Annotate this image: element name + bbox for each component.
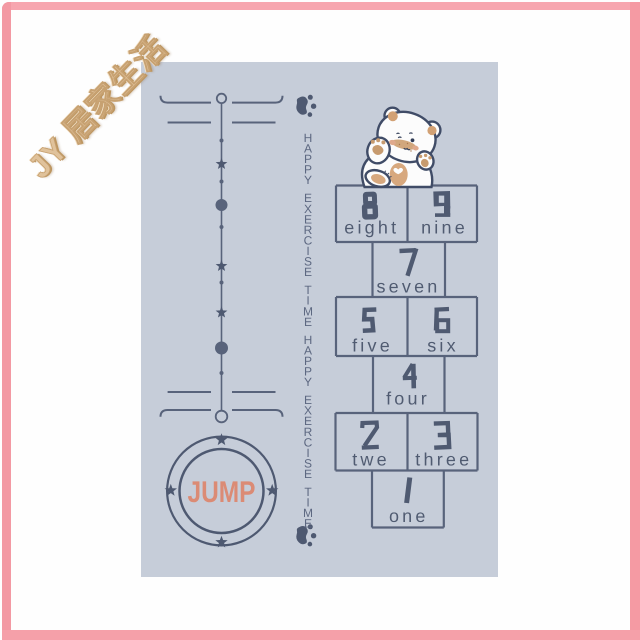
svg-text:four: four (386, 389, 430, 409)
svg-text:three: three (415, 450, 472, 470)
svg-text:eight: eight (344, 218, 399, 238)
svg-text:six: six (427, 336, 459, 356)
svg-text:five: five (352, 336, 393, 356)
svg-text:JUMP: JUMP (188, 476, 256, 509)
svg-text:Y: Y (304, 173, 312, 187)
svg-text:E: E (304, 315, 312, 329)
svg-text:E: E (304, 467, 312, 481)
svg-text:Y: Y (304, 375, 312, 389)
svg-text:one: one (389, 506, 429, 526)
svg-text:E: E (304, 265, 312, 279)
svg-text:E: E (304, 517, 312, 531)
svg-text:nine: nine (421, 218, 468, 238)
svg-text:twe: twe (352, 450, 390, 470)
svg-text:seven: seven (376, 277, 440, 297)
